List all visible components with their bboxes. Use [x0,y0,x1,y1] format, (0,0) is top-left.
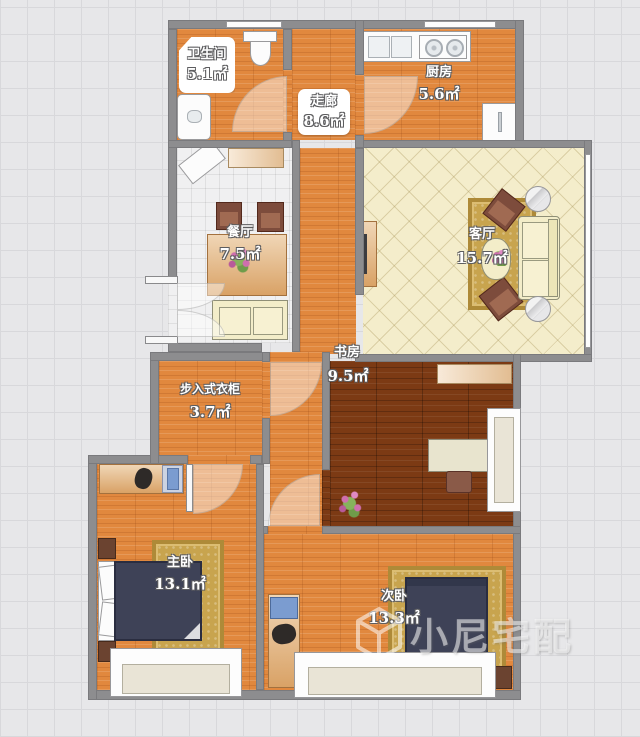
computer [270,597,298,619]
washbasin [177,94,211,140]
wall-bathroom-east-top [283,29,292,70]
burner-right [446,39,464,57]
wall-closet-north [150,352,270,361]
wall-master-east [256,464,264,690]
bay-window-master [110,648,242,697]
entry-door-leaf-bottom [145,336,178,344]
fridge-handle [498,112,502,132]
room-area-kitchen: 5.6㎡ [410,84,468,104]
sofa-cushion [522,222,549,259]
watermark-text: 小尼宅配 [410,606,574,661]
window-bathroom-top [226,21,282,28]
master-door-leaf [186,464,193,512]
room-area-living: 15.7㎡ [444,248,520,268]
wall-corridor-east [355,148,364,295]
room-label-closet: 步入式衣柜 [162,380,258,398]
wall-master-north-right [250,455,262,464]
watermark-cube-icon [356,607,402,661]
room-area-bathroom: 5.1㎡ [186,64,227,84]
sofa-cushion [522,260,549,297]
window-living-east [585,154,591,348]
wall-master-west [88,455,97,700]
wall-living-south [355,354,592,362]
sofa-back [548,219,558,297]
kitchen-sink [367,35,413,59]
study-desk [428,439,490,472]
room-label-living: 客厅 [448,226,516,244]
shirt-icon [167,468,179,490]
bed-headboard [407,579,486,586]
sink-basin-left [368,36,390,58]
room-area-dining: 7.5㎡ [208,244,272,264]
sink-basin-right [391,36,412,58]
kitchen-gap-floor [355,75,364,135]
room-area-study: 9.5㎡ [314,366,382,386]
corridor-label-board: 走廊 8.6㎡ [298,89,350,135]
sideboard [228,148,284,168]
study-cabinet [437,364,512,384]
bay-window-sill [308,667,482,695]
wall-closet-east-bottom [262,418,270,464]
wall-living-north [355,140,592,148]
duvet-fold [184,623,200,639]
room-label-study: 书房 [316,344,378,362]
wall-corridor-west [292,140,300,352]
wall-secondary-north [322,526,521,534]
burner-left [425,39,443,57]
wall-west-upper [168,29,177,278]
sofa [518,216,560,300]
wall-closet-west [150,352,159,464]
room-label-bathroom: 卫生间 [187,46,226,64]
room-area-master: 13.1㎡ [150,574,210,594]
study-gap-floor [322,470,330,526]
room-label-corridor: 走廊 [311,93,337,111]
floorplan-canvas: 卫生间 5.1㎡ 走廊 8.6㎡ 厨房 5.6㎡ 客厅 15.7㎡ 餐厅 7.5… [0,0,640,737]
bathroom-label-board: 卫生间 5.1㎡ [179,37,235,93]
stove [419,35,467,59]
room-label-master: 主卧 [154,554,206,572]
wall-closet-east-top [262,352,270,362]
room-area-corridor: 8.6㎡ [303,111,344,131]
bay-window-study [487,408,521,512]
room-label-kitchen: 厨房 [410,64,468,82]
wardrobe-cell [162,465,183,493]
fridge [482,103,516,141]
wall-master-north-left [88,455,188,464]
wall-kitchen-east [515,20,524,148]
room-label-dining: 餐厅 [210,224,270,242]
corridor-floor-vertical [300,148,356,354]
master-gap-floor [188,455,250,464]
wall-kitchen-west-bottom [355,135,364,148]
side-table-bottom [525,296,551,322]
wall-bathroom-south [168,140,292,148]
toilet-bowl [250,41,271,66]
wall-dining-south [168,343,262,352]
washbasin-bowl [187,110,202,123]
entry-door-leaf-top [145,276,178,284]
study-plant [336,488,366,520]
master-bed-duvet [114,561,202,641]
master-nightstand-top [98,538,116,559]
entry-gap-floor [168,278,177,338]
window-kitchen-top [424,21,496,28]
room-label-secondary: 次卧 [366,588,422,606]
wall-kitchen-west-top [355,20,364,75]
bench-cushion [253,307,283,335]
bay-window-sill [494,417,514,503]
closet-gap-floor [262,362,270,418]
side-table-top [525,186,551,212]
room-area-closet: 3.7㎡ [186,402,234,422]
secondary-gap-floor [268,526,322,534]
bay-window-sill [122,664,230,694]
study-chair [446,471,472,493]
watermark: 小尼宅配 [356,606,574,661]
